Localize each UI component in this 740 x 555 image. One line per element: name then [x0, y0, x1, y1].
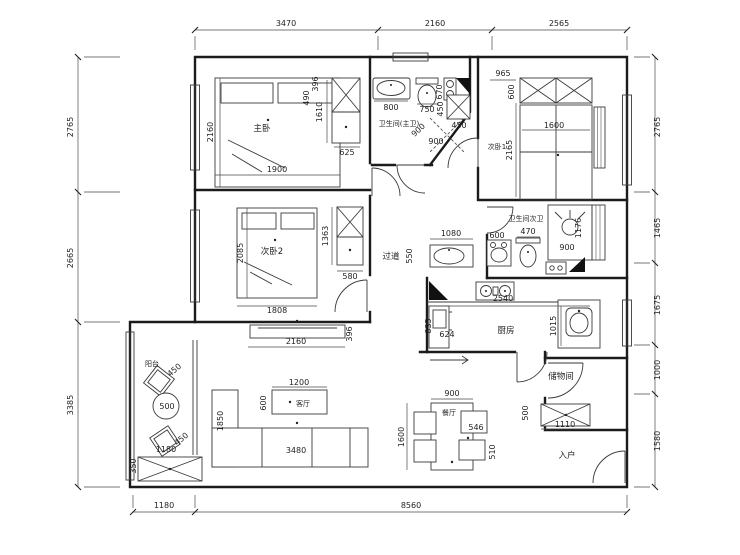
room-label-bedroom2: 次卧2: [261, 246, 283, 257]
window-bath-top: [393, 53, 428, 61]
duct-triangle-kitchen: [429, 281, 448, 300]
room-label-hallway: 过道: [382, 251, 400, 262]
dim-right-2: 1465: [653, 218, 662, 238]
dim-balcony-cab-d: 350: [129, 458, 138, 473]
dim-master-wardrobe-len: 1610: [315, 102, 324, 122]
shaft-hatch: [592, 205, 605, 260]
dim-storage-cab-w: 1110: [555, 420, 575, 429]
dim-bed2-wardrobe-d: 580: [342, 272, 357, 281]
dim-balcony-chair-a: 450: [166, 362, 183, 379]
dim-master-nightstand: 490: [302, 90, 311, 105]
dim-bottom-1: 1180: [154, 501, 174, 510]
duct-triangle-secondbath: [569, 257, 585, 272]
kitchen-sink: [566, 308, 592, 336]
dim-bed1-bed-w: 1600: [544, 121, 564, 130]
dim-storage-cab-d: 500: [521, 405, 530, 420]
dim-sofa: 3480: [286, 446, 306, 455]
dim-right-3: 1675: [653, 295, 662, 315]
dim-bed1-cab-d: 600: [507, 84, 516, 99]
room-label-second-bath: 卫生间次卫: [509, 214, 544, 223]
room-label-dining: 餐厅: [442, 408, 456, 417]
dim-balcony-table: 500: [159, 402, 174, 411]
bedroom1-side-cabinet: [447, 95, 470, 119]
dim-basin-d: 550: [405, 248, 414, 263]
room-label-living: 客厅: [296, 399, 310, 408]
dim-bottom-2: 8560: [401, 501, 421, 510]
dim-left-3: 3385: [66, 395, 75, 415]
dim-master-wardrobe-depth: 625: [339, 148, 354, 157]
dim-right-1: 2765: [653, 117, 662, 137]
door-master-bath: [397, 165, 425, 193]
bedroom1-top-cabinet: [520, 78, 592, 103]
dim-living-table-d: 600: [259, 395, 268, 410]
washer-box: [546, 262, 566, 274]
dim-dining-length: 1600: [397, 427, 406, 447]
toilet-second: [516, 238, 540, 267]
room-label-bedroom1: 次卧1: [488, 142, 506, 151]
door-bedroom1: [448, 138, 478, 168]
dim-right-4: 1000: [653, 360, 662, 380]
dim-kitchen-counter: 2540: [493, 294, 513, 303]
door-kitchen: [517, 352, 547, 382]
dim-basin-w: 1080: [441, 229, 461, 238]
window-kitchen-right: [623, 300, 632, 346]
dim-bed2-width: 1808: [267, 306, 287, 315]
door-bedroom2: [335, 280, 367, 312]
dim-bed2-wardrobe-len: 1363: [321, 226, 330, 246]
dim-top-2: 2160: [425, 19, 445, 28]
window-bed1-right: [623, 95, 632, 185]
door-master: [372, 168, 400, 196]
dim-bed1-bed-l: 2165: [505, 140, 514, 160]
room-label-entry: 入户: [558, 450, 575, 461]
dim-top-3: 2565: [549, 19, 569, 28]
room-label-master-bath: 卫生间(主卫): [379, 119, 420, 128]
dim-dining-chair-d: 510: [488, 444, 497, 459]
dim-dining-table-w: 900: [444, 389, 459, 398]
bathtub: [373, 78, 410, 99]
dim-living-table-w: 1200: [289, 378, 309, 387]
dim-toilet-w: 750: [419, 105, 434, 114]
entry-arrow: [430, 356, 468, 364]
room-label-balcony: 阳台: [145, 359, 159, 368]
dim-left-1: 2765: [66, 117, 75, 137]
window-master-left: [191, 85, 200, 170]
dim-toilet-d: 670: [435, 84, 444, 99]
dim-master-bed-width: 1900: [267, 165, 287, 174]
dim-bed1-side-d: 450: [436, 101, 445, 116]
dim-bed1-cab-w: 965: [495, 69, 510, 78]
room-label-kitchen: 厨房: [497, 325, 514, 336]
dim-balcony-cab-w: 1180: [156, 445, 176, 454]
dim-shower-a: 900: [428, 137, 443, 146]
room-label-master: 主卧: [253, 123, 271, 134]
duct-triangle-masterbath: [456, 78, 470, 94]
dim-left-2: 2665: [66, 248, 75, 268]
dim-kitchen-cab-w: 624: [439, 330, 454, 339]
dim-kitchen-depth: 1015: [549, 316, 558, 336]
dim-bath2-basin: 600: [489, 231, 504, 240]
dim-bath2-shower-l: 1176: [574, 218, 583, 238]
dim-bed2-depth: 2085: [236, 243, 245, 263]
radiator-bed1: [594, 107, 605, 168]
dim-top-1: 3470: [276, 19, 296, 28]
window-bed2-left: [191, 210, 200, 302]
dim-dining-chair-w: 546: [468, 423, 483, 432]
window-balcony-left: [126, 332, 134, 480]
dim-tub: 800: [383, 103, 398, 112]
balcony-divider: [193, 340, 197, 455]
dim-bath2-shower-w: 900: [559, 243, 574, 252]
dim-living-width: 1850: [216, 411, 225, 431]
bedroom1-bed: [520, 105, 592, 200]
bedroom2-wardrobe: [337, 207, 363, 265]
dim-master-shelf: 396: [311, 76, 320, 91]
dim-tv-depth: 396: [345, 326, 354, 341]
floor-plan-drawing: 3470 2160 2565 2765 2665 3385 2765 1465 …: [0, 0, 740, 555]
door-entry: [593, 451, 625, 483]
master-wardrobe: [332, 78, 360, 143]
secondbath-basin: [487, 240, 511, 266]
dim-master-bed-depth: 2160: [206, 122, 215, 142]
dim-kitchen-cab-d: 835: [424, 318, 433, 333]
dim-bed1-side-w: 450: [451, 121, 466, 130]
balcony-cabinet: [138, 457, 202, 481]
dim-tv-cabinet: 2160: [286, 337, 306, 346]
dim-right-5: 1580: [653, 431, 662, 451]
floor-plan-page: 3470 2160 2565 2765 2665 3385 2765 1465 …: [0, 0, 740, 555]
hall-basin: [430, 245, 473, 267]
dim-bath2-toilet: 470: [520, 227, 535, 236]
room-label-storage: 储物间: [548, 371, 574, 382]
